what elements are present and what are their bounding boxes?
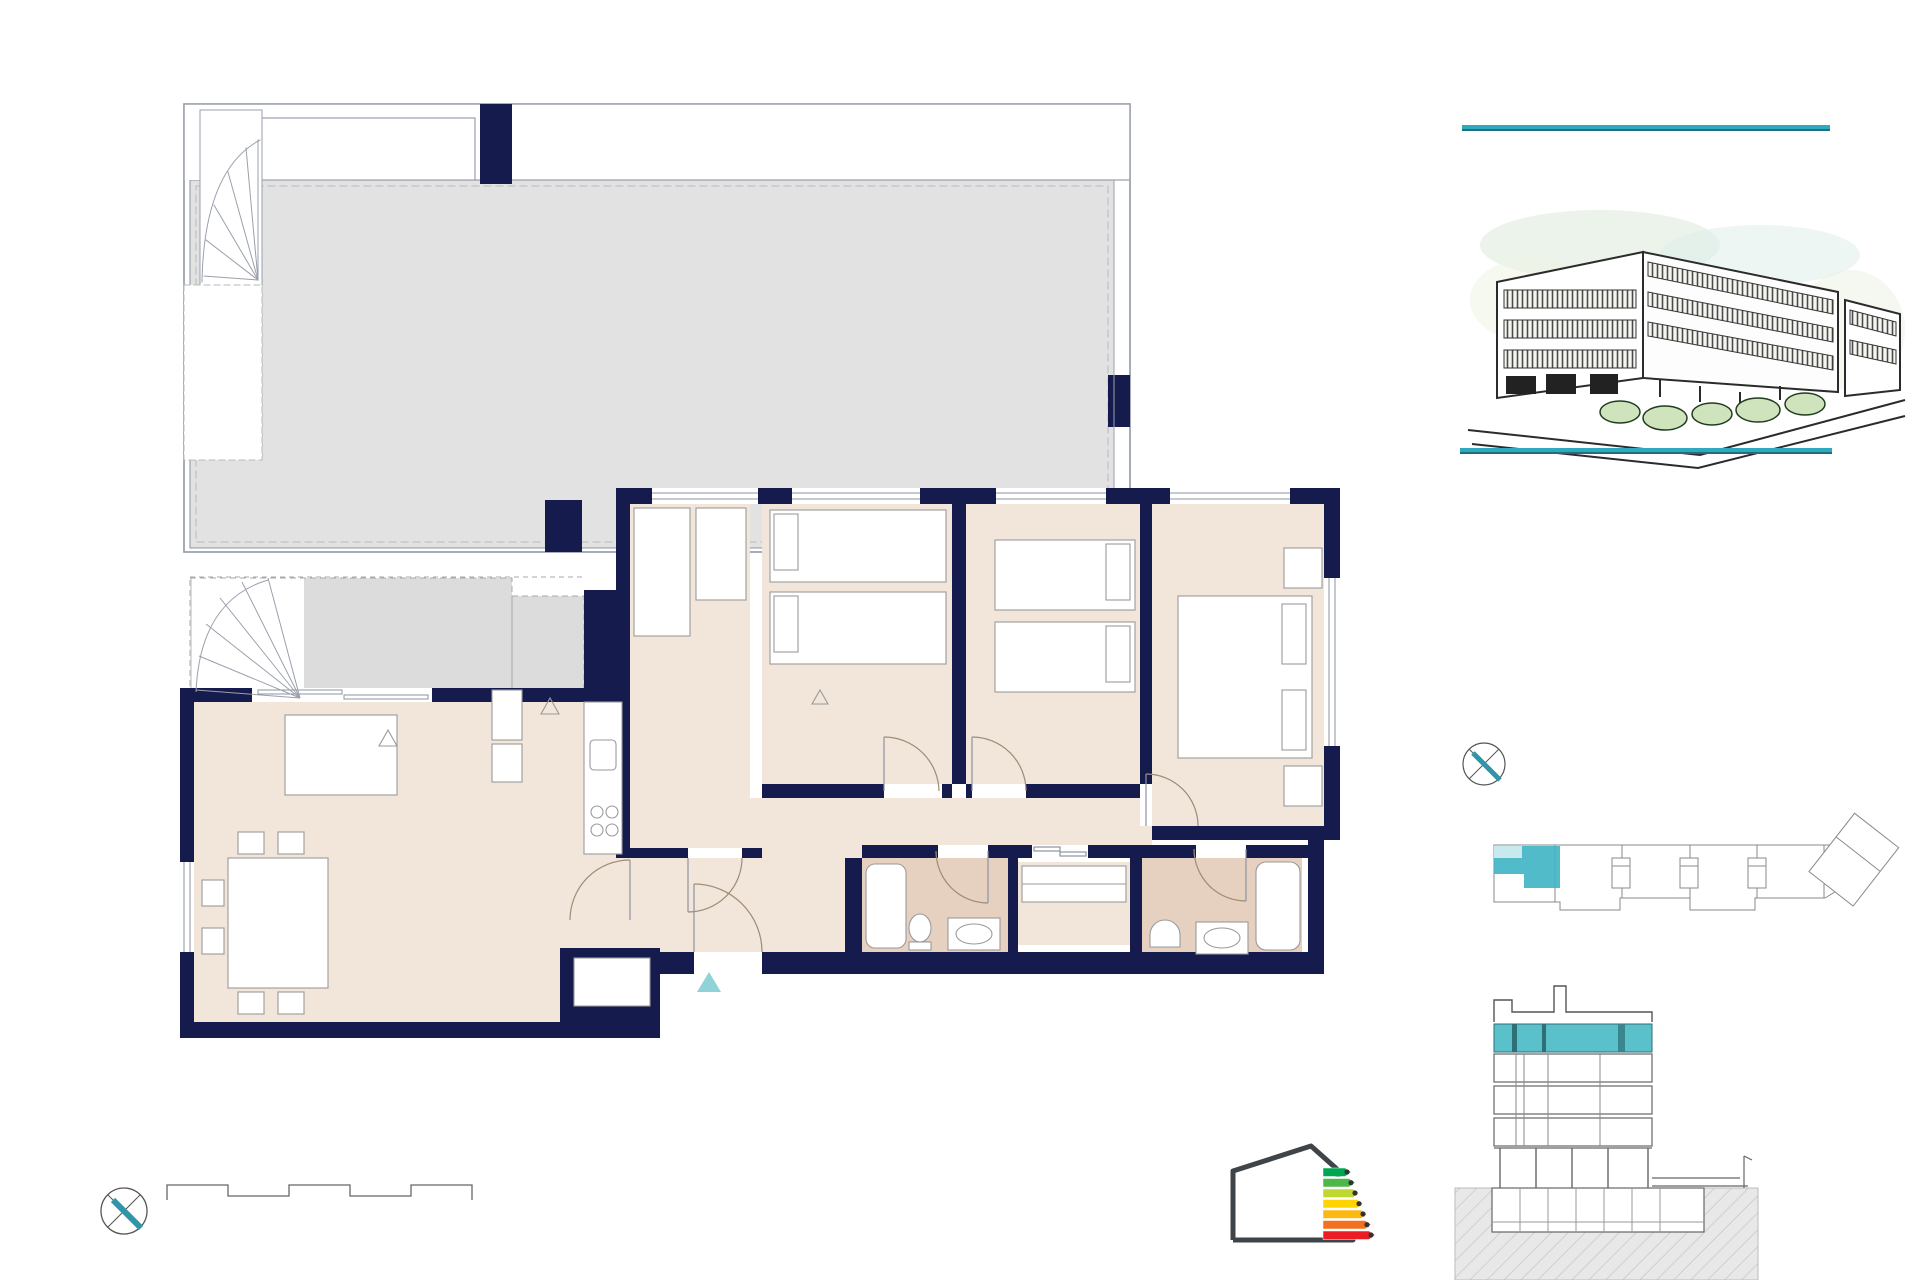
floorplan-sheet [0,0,1920,1280]
energy-rating-icon [0,0,1920,1280]
